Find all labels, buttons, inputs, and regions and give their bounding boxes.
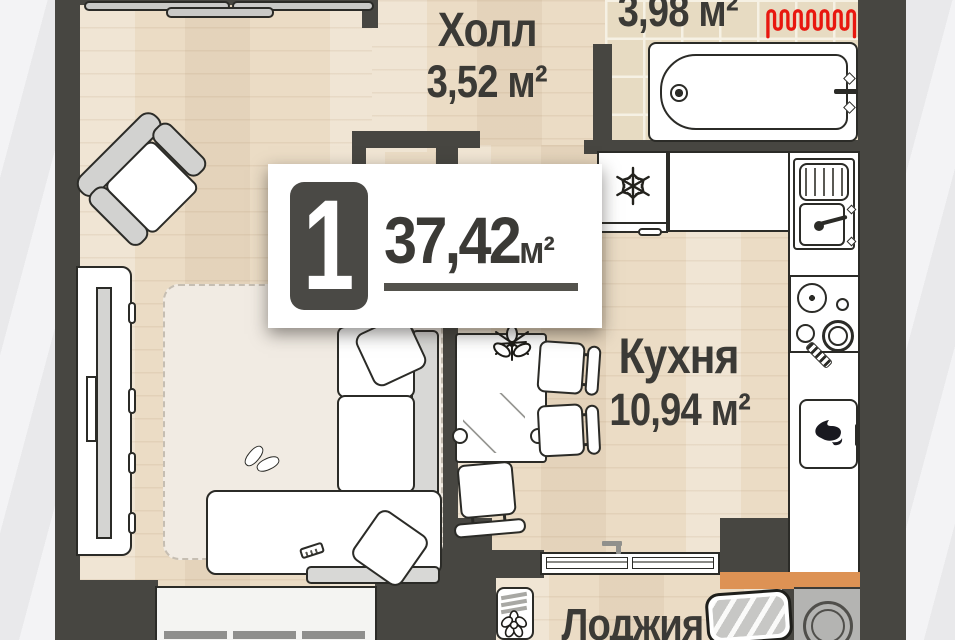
wall-hall-living-drop [352, 131, 366, 165]
sink-drainboard [799, 163, 849, 201]
area-badge: 1 37,42м² [268, 164, 602, 328]
room-label-loggia-name: Лоджия [522, 601, 742, 640]
window-frame [233, 631, 296, 639]
tv-stand-handle [128, 452, 136, 474]
tv-stand-handle [128, 302, 136, 324]
badge-area-unit: м² [519, 230, 554, 272]
burner [796, 324, 815, 343]
room-label-bathroom-area: 3,98 м² [593, 0, 763, 34]
room-label-kitchen-area: 10,94 м² [560, 386, 800, 433]
radiator-icon [764, 3, 858, 41]
window-frame [164, 631, 227, 639]
sofa-cushion [337, 395, 415, 493]
chair-back [453, 518, 526, 539]
burner [836, 298, 849, 311]
room-label-hall-area: 3,52 м² [377, 58, 597, 105]
badge-underline [384, 283, 578, 291]
water-heater-handle [855, 424, 859, 446]
wall-right-outer [858, 0, 906, 640]
faucet-spout [834, 89, 858, 94]
pan-inner [828, 326, 848, 346]
chair-seat [456, 461, 516, 520]
badge-room-count-box: 1 [290, 182, 368, 310]
washing-machine-door-inner [811, 609, 845, 640]
floor-plan: Холл 3,52 м² 3,98 м² Кухня 10,94 м² Лодж… [0, 0, 955, 640]
fridge-door-line [599, 222, 666, 224]
balcony-window-pane [546, 557, 628, 569]
bathtub-drain [670, 84, 688, 102]
wall-bottom-left-block [78, 580, 158, 640]
room-label-kitchen-name: Кухня [564, 330, 794, 383]
window-handle [616, 541, 621, 554]
chair [448, 458, 547, 552]
balcony-window-pane [632, 557, 714, 569]
badge-area-value: 37,42 [384, 203, 519, 277]
wardrobe-door [166, 7, 274, 18]
kitchen-counter [668, 151, 790, 232]
room-label-hall-name: Холл [377, 6, 597, 56]
burner [797, 283, 827, 313]
snowflake-icon [613, 166, 653, 206]
tv-stand-handle [128, 512, 136, 534]
wall-hall-living [352, 131, 480, 148]
badge-room-count: 1 [303, 182, 354, 310]
window-frame [302, 631, 365, 639]
bathtub-basin [660, 54, 848, 130]
badge-area: 37,42м² [384, 202, 578, 291]
tv-stand-handle [128, 388, 136, 414]
flame-icon [812, 418, 846, 448]
table-glass [463, 393, 525, 453]
table-leg [452, 428, 468, 444]
fridge-handle [638, 228, 662, 236]
tv [96, 287, 112, 539]
